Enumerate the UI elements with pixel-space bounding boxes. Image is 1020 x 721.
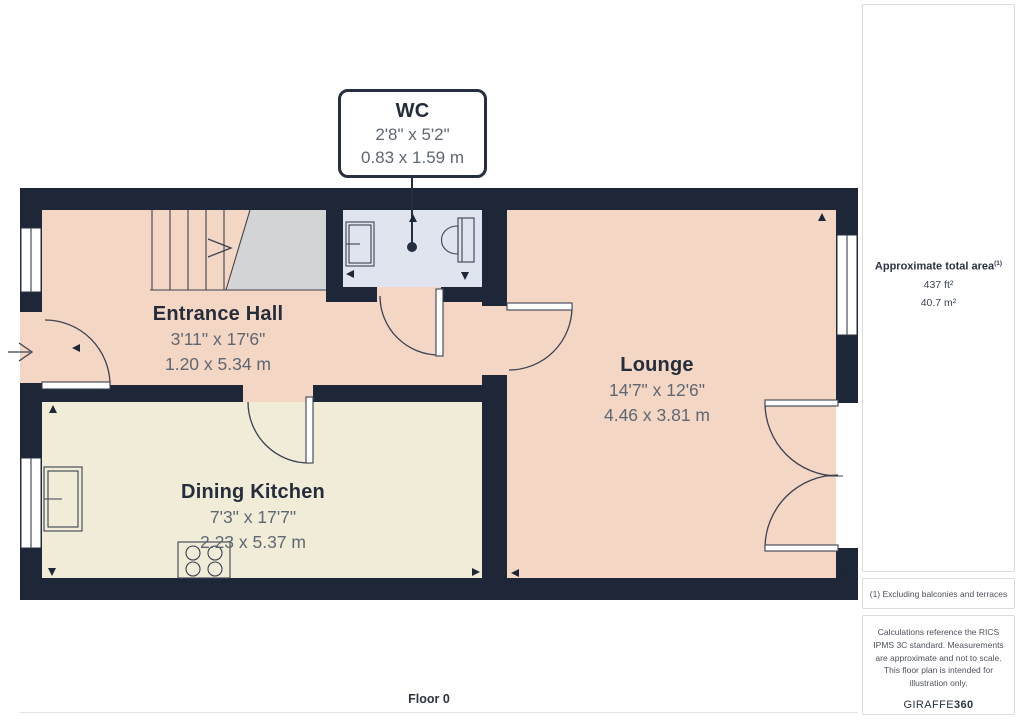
wall-top [20,188,858,210]
disclaimer-box: Calculations reference the RICS IPMS 3C … [862,615,1015,715]
footnote-box: (1) Excluding balconies and terraces [862,578,1015,609]
room-name: Lounge [604,352,710,378]
wall-lounge-divider [482,210,507,578]
front-door-opening [20,312,42,383]
room-label-lounge: Lounge 14'7" x 12'6" 4.46 x 3.81 m [604,352,710,428]
room-dim-metric: 2.23 x 5.37 m [181,530,325,555]
room-dim-imperial: 7'3" x 17'7" [181,505,325,530]
bottom-divider [20,712,858,713]
wall-wc-bottom-left [326,287,377,302]
wall-kitchen-right [313,385,482,402]
room-dim-imperial: 3'11" x 17'6" [153,327,283,352]
callout-room-name: WC [341,99,484,123]
room-dim-metric: 1.20 x 5.34 m [153,352,283,377]
floor-label: Floor 0 [0,692,858,706]
floorplan-page: WC 2'8" x 5'2" 0.83 x 1.59 m Entrance Ha… [0,0,1020,721]
sidebar-area-card: Approximate total area(1) 437 ft² 40.7 m… [862,4,1015,572]
room-dim-metric: 4.46 x 3.81 m [604,403,710,428]
brand-secondary: 360 [954,699,974,711]
wc-callout: WC 2'8" x 5'2" 0.83 x 1.59 m [338,89,487,178]
brand-primary: GIRAFFE [903,699,953,711]
total-area-superscript: (1) [994,260,1002,267]
callout-dim-metric: 0.83 x 1.59 m [341,146,484,169]
disclaimer-text: Calculations reference the RICS IPMS 3C … [872,626,1005,690]
total-area-block: Approximate total area(1) 437 ft² 40.7 m… [863,257,1014,310]
window-lounge [837,235,857,335]
total-area-m: 40.7 m² [863,297,1014,310]
wall-bottom [20,578,858,600]
total-area-label: Approximate total area(1) [863,257,1014,274]
window-hall [21,228,41,292]
room-label-entrance-hall: Entrance Hall 3'11" x 17'6" 1.20 x 5.34 … [153,301,283,377]
wc-leader-dot [407,242,417,252]
giraffe360-logo: GIRAFFE360 [872,699,1005,711]
window-kitchen [21,458,41,548]
total-area-label-text: Approximate total area [875,261,994,273]
callout-dim-imperial: 2'8" x 5'2" [341,123,484,146]
footnote-text: (1) Excluding balconies and terraces [870,589,1008,599]
lounge-door-opening [482,306,507,375]
room-label-dining-kitchen: Dining Kitchen 7'3" x 17'7" 2.23 x 5.37 … [181,479,325,555]
room-dim-imperial: 14'7" x 12'6" [604,378,710,403]
total-area-ft: 437 ft² [863,279,1014,292]
room-name: Dining Kitchen [181,479,325,505]
room-name: Entrance Hall [153,301,283,327]
